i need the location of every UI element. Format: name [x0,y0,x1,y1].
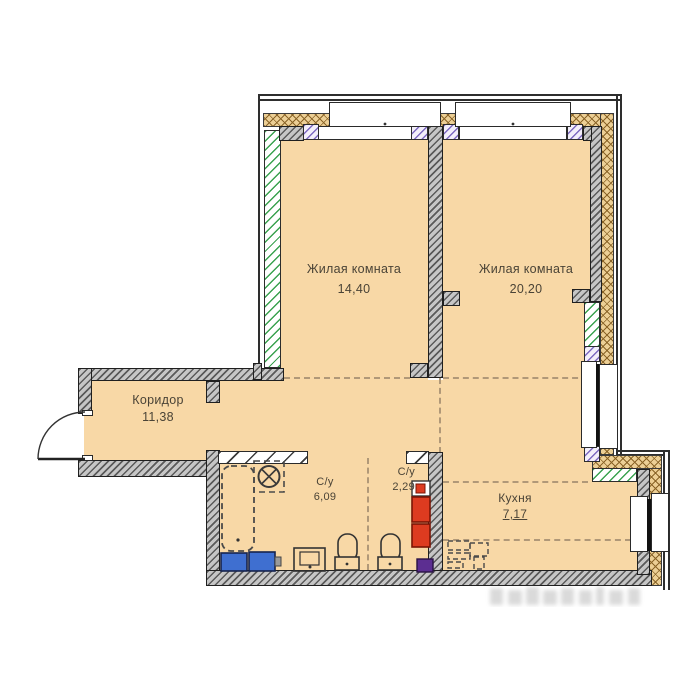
floor-hall-zone [443,378,588,458]
window-room2 [455,102,571,127]
window-kitchen-inner [630,496,648,552]
glazed-section-right [584,302,600,347]
wall-center [428,126,443,378]
entrance-door [38,412,85,459]
window-right-inner [581,361,597,448]
partition-wc [406,451,429,464]
window-jamb [303,124,319,140]
insulation-band-step [592,455,662,469]
corridor-area: 11,38 [100,410,216,424]
window-jamb [584,346,600,362]
facade-line [616,450,670,452]
room1-area: 14,40 [281,282,427,296]
bathroom-area: 6,09 [295,491,355,503]
wall-bath-left [206,450,220,586]
wall-stub [279,126,304,141]
wc-area: 2,29 [355,481,415,493]
corridor-name: Коридор [100,393,216,407]
door-jamb-mark [82,455,93,461]
window-sill [459,126,567,140]
facade-line [258,94,260,372]
wall-bottom [206,570,652,586]
door-jamb-mark [82,410,93,416]
partition-bathroom [218,451,308,464]
glazed-strip-left [264,130,281,368]
wall-corridor-bottom [78,460,208,477]
window-right-outer [599,364,618,449]
window-jamb [584,446,600,462]
wall-corridor-left [78,368,92,414]
wall-stub [583,126,592,141]
bathroom-name: С/у [295,476,355,488]
window-room1 [329,102,441,127]
window-sill [318,126,412,140]
kitchen-name: Кухня [480,491,550,505]
room2-area: 20,20 [453,282,599,296]
facade-line [259,94,621,96]
zone-line [439,378,441,453]
wall-corner [253,363,262,380]
zone-line [284,377,410,379]
wc-name: С/у [355,466,415,478]
wall-stub [410,363,428,378]
zone-line [443,377,588,379]
floor-plan: Жилая комната 14,40 Жилая комната 20,20 … [0,0,700,700]
facade-line [259,99,621,101]
zone-line [443,481,588,483]
zone-line [443,539,631,541]
facade-line [620,94,622,455]
room1-name: Жилая комната [281,262,427,276]
glazed-section-kitchen [592,468,637,482]
window-kitchen-outer [651,493,669,552]
wall-bath-kitchen [428,452,443,571]
kitchen-area: 7,17 [480,507,550,521]
floor-room-1 [279,138,428,380]
watermark [490,587,640,605]
room2-name: Жилая комната [453,262,599,276]
